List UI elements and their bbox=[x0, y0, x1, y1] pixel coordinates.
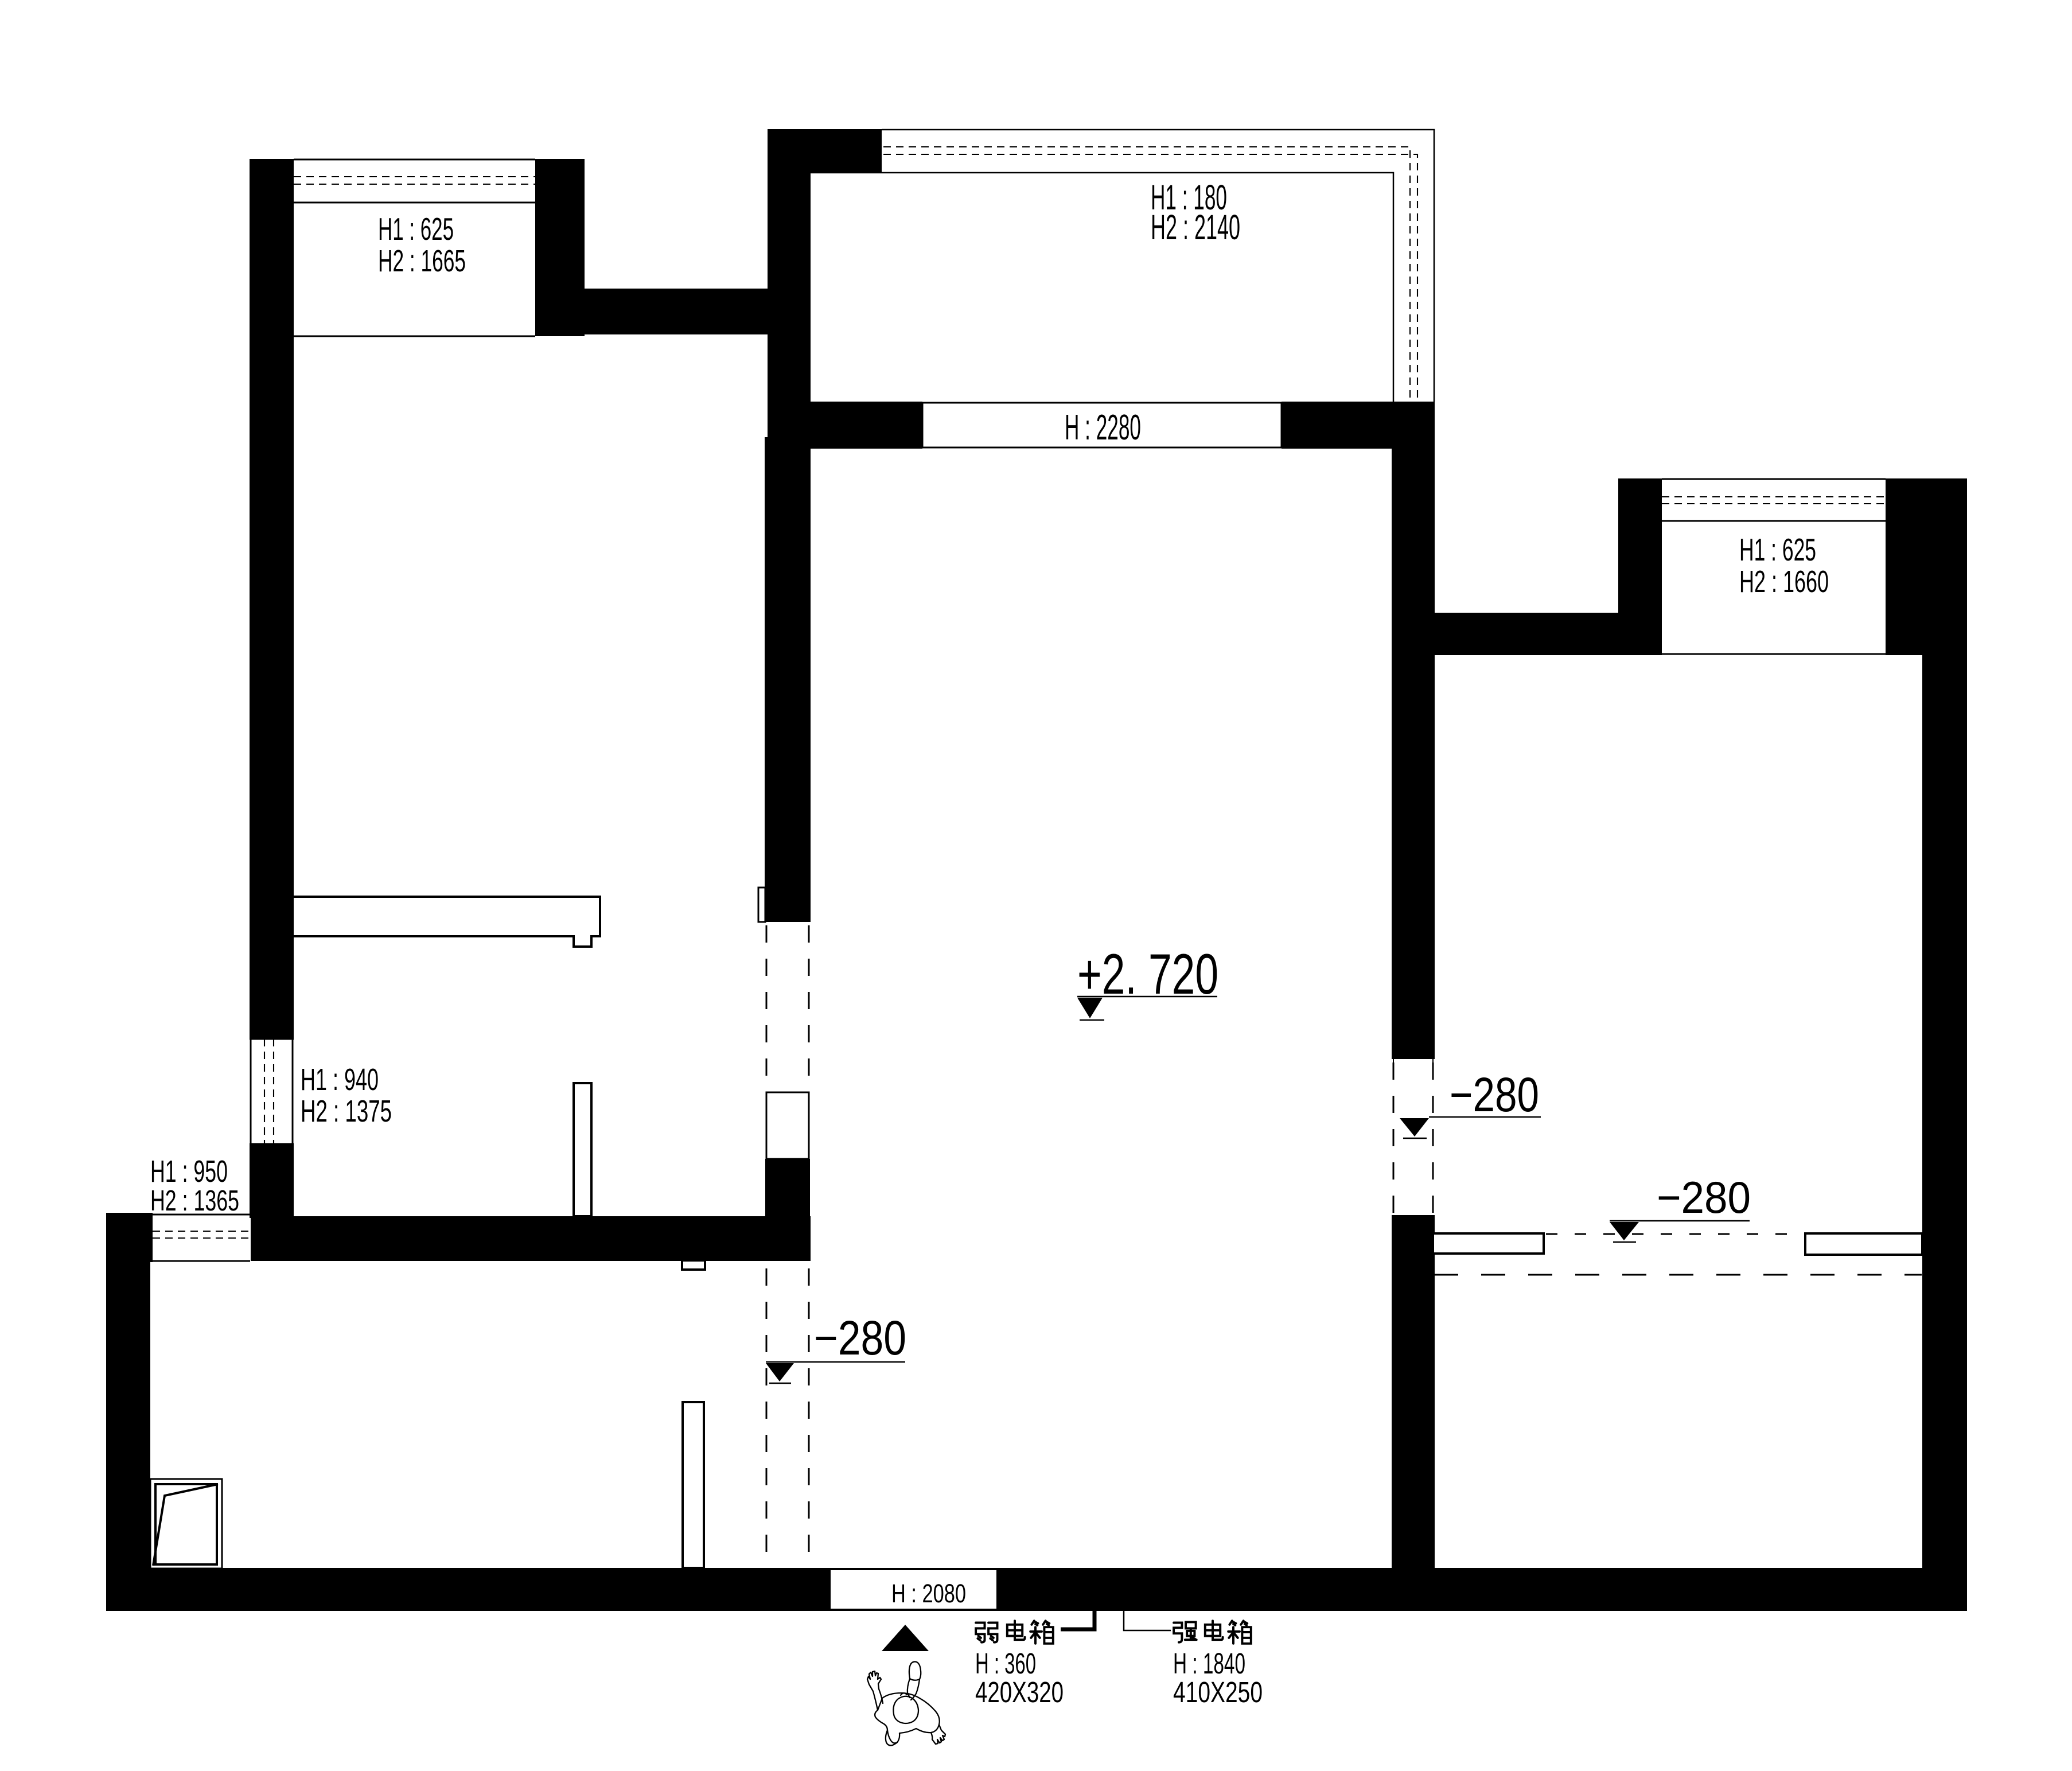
svg-text:H2 : 1660: H2 : 1660 bbox=[1739, 565, 1829, 599]
svg-text:H2 : 1375: H2 : 1375 bbox=[301, 1094, 392, 1128]
svg-text:−280: −280 bbox=[814, 1311, 906, 1365]
svg-text:H2 : 1365: H2 : 1365 bbox=[150, 1184, 239, 1217]
svg-text:H1 : 625: H1 : 625 bbox=[378, 211, 454, 247]
svg-text:H1 : 625: H1 : 625 bbox=[1739, 532, 1816, 567]
svg-text:H : 2080: H : 2080 bbox=[891, 1579, 966, 1608]
svg-text:−280: −280 bbox=[1657, 1172, 1751, 1223]
svg-text:H2 : 1665: H2 : 1665 bbox=[378, 244, 466, 278]
svg-text:H : 2280: H : 2280 bbox=[1065, 408, 1141, 447]
svg-text:H1 : 940: H1 : 940 bbox=[301, 1062, 379, 1097]
svg-text:H2 : 2140: H2 : 2140 bbox=[1151, 208, 1240, 247]
svg-text:410X250: 410X250 bbox=[1173, 1676, 1263, 1708]
svg-text:H : 1840: H : 1840 bbox=[1173, 1647, 1245, 1680]
svg-text:−280: −280 bbox=[1450, 1068, 1539, 1122]
svg-text:H : 360: H : 360 bbox=[975, 1647, 1036, 1680]
svg-text:420X320: 420X320 bbox=[975, 1676, 1064, 1708]
svg-text:H1 : 950: H1 : 950 bbox=[150, 1154, 228, 1189]
